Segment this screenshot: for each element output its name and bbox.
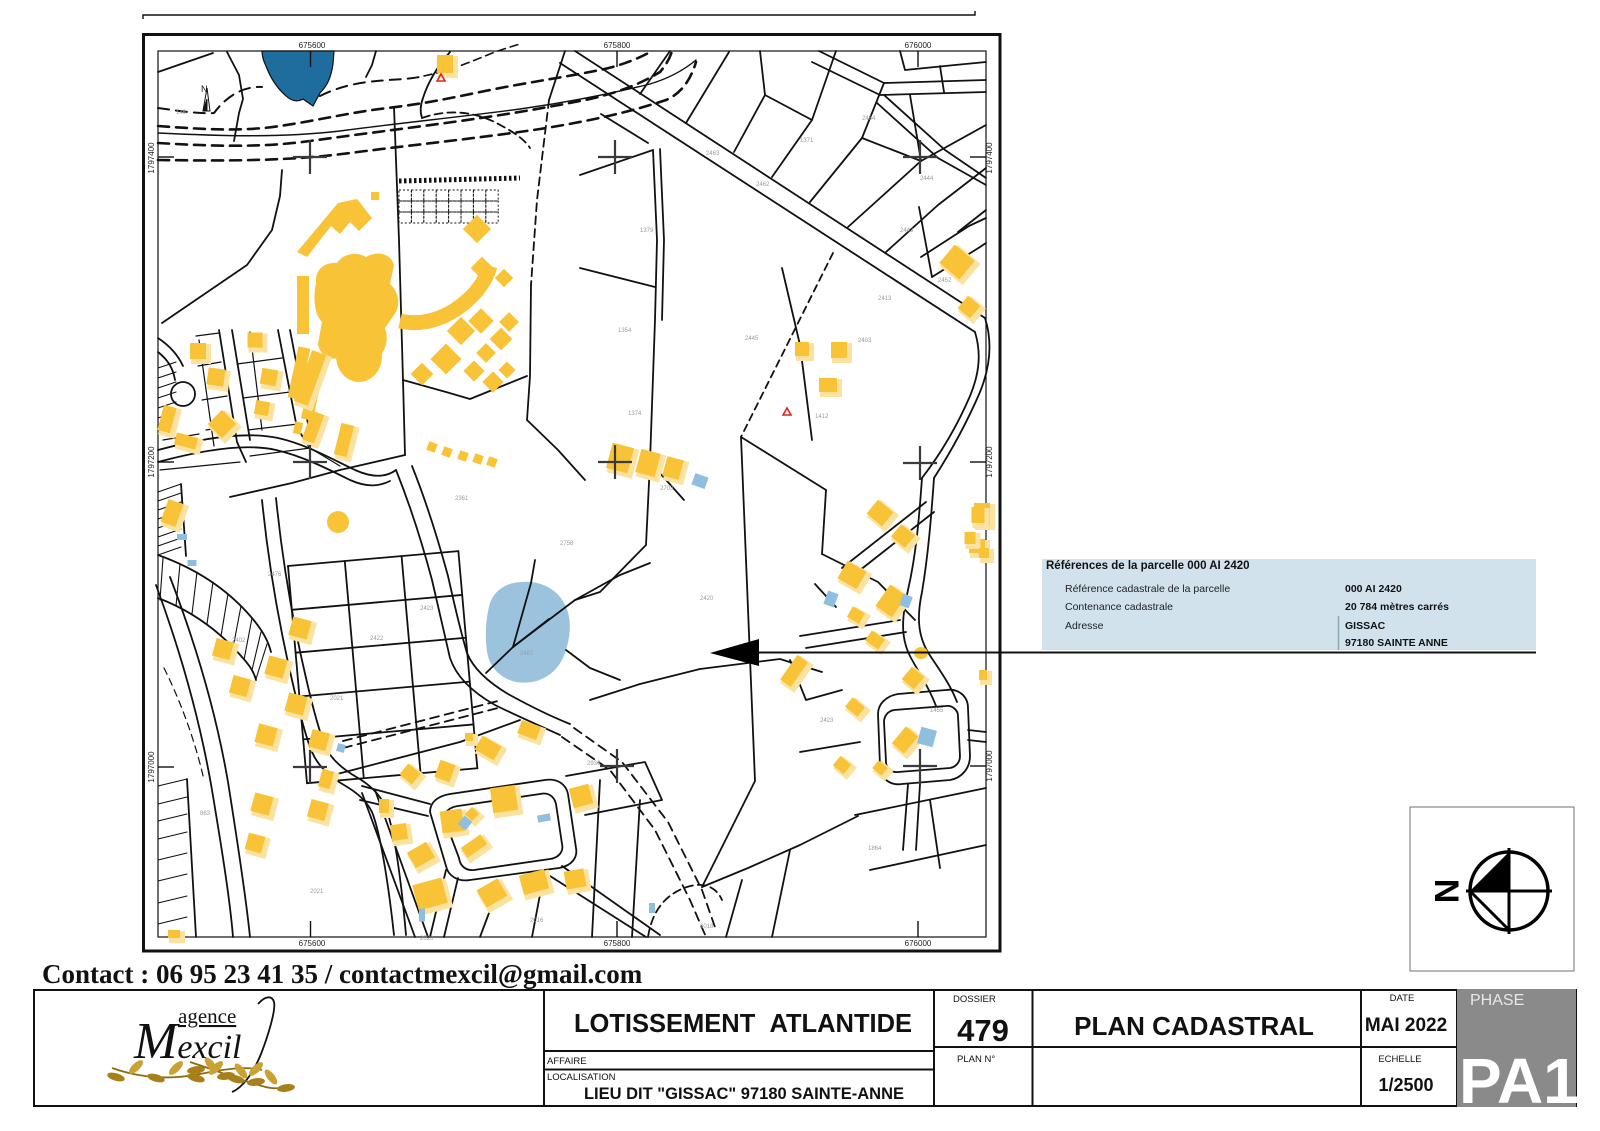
svg-text:LOTISSEMENT ATLANTIDE: LOTISSEMENT ATLANTIDE [574,1010,912,1038]
svg-text:20 784 mètres carrés: 20 784 mètres carrés [1345,601,1449,613]
svg-text:2463: 2463 [706,151,720,157]
svg-text:2413: 2413 [878,296,892,302]
svg-text:97180 SAINTE ANNE: 97180 SAINTE ANNE [1345,637,1448,649]
svg-text:2422: 2422 [370,636,384,642]
svg-text:2758: 2758 [560,541,574,547]
svg-text:Références de la parcelle 000: Références de la parcelle 000 AI 2420 [1046,560,1250,572]
svg-text:2487: 2487 [520,651,534,657]
svg-text:ECHELLE: ECHELLE [1378,1054,1421,1065]
svg-text:863: 863 [200,811,211,817]
svg-text:1797200: 1797200 [985,446,994,478]
svg-text:2021: 2021 [310,889,324,895]
svg-text:2021: 2021 [330,696,344,702]
svg-text:2018: 2018 [700,924,714,930]
svg-text:2420: 2420 [700,596,714,602]
svg-text:479: 479 [957,1013,1009,1048]
svg-text:146: 146 [176,110,187,116]
svg-text:2476: 2476 [268,572,282,578]
svg-text:1374: 1374 [628,411,642,417]
svg-text:2423: 2423 [420,606,434,612]
svg-text:2936: 2936 [587,761,601,767]
svg-text:1797400: 1797400 [147,142,156,174]
svg-text:LIEU DIT "GISSAC" 97180 SAINTE: LIEU DIT "GISSAC" 97180 SAINTE-ANNE [584,1085,904,1103]
svg-text:DOSSIER: DOSSIER [953,994,996,1005]
svg-text:000 AI 2420: 000 AI 2420 [1345,583,1402,595]
svg-text:1/2500: 1/2500 [1378,1075,1433,1095]
svg-text:LOCALISATION: LOCALISATION [547,1072,616,1083]
svg-text:2462: 2462 [756,182,770,188]
svg-text:1379: 1379 [640,228,654,234]
svg-text:1797000: 1797000 [985,750,994,782]
svg-text:1455: 1455 [930,708,944,714]
svg-text:2445: 2445 [745,336,759,342]
svg-text:2016: 2016 [530,918,544,924]
svg-text:2402: 2402 [232,638,246,644]
svg-text:2020: 2020 [420,936,434,942]
svg-text:1412: 1412 [815,414,829,420]
svg-text:675800: 675800 [604,41,631,50]
svg-text:MAI 2022: MAI 2022 [1365,1015,1447,1036]
svg-text:Adresse: Adresse [1065,620,1104,632]
svg-text:675600: 675600 [299,41,326,50]
svg-text:PLAN N°: PLAN N° [957,1054,995,1065]
svg-text:675600: 675600 [299,939,326,948]
svg-text:1354: 1354 [618,328,632,334]
svg-text:2703: 2703 [660,486,674,492]
svg-text:1797200: 1797200 [147,446,156,478]
svg-text:2403: 2403 [858,338,872,344]
svg-text:Référence cadastrale de la par: Référence cadastrale de la parcelle [1065,583,1230,595]
svg-text:2443: 2443 [900,228,914,234]
svg-text:2423: 2423 [820,718,834,724]
svg-text:2464: 2464 [862,116,876,122]
svg-text:2452: 2452 [938,278,952,284]
svg-text:PHASE: PHASE [1470,992,1524,1009]
svg-text:2361: 2361 [455,496,469,502]
svg-text:DATE: DATE [1390,993,1415,1004]
svg-text:PA1: PA1 [1459,1045,1579,1117]
svg-text:N: N [201,84,208,94]
svg-text:GISSAC: GISSAC [1345,620,1386,632]
svg-text:675800: 675800 [604,939,631,948]
svg-text:Contact : 06 95 23 41 35 / con: Contact : 06 95 23 41 35 / contactmexcil… [42,959,643,989]
svg-text:1797000: 1797000 [147,751,156,783]
svg-text:N: N [1427,879,1465,904]
svg-text:2444: 2444 [920,176,934,182]
svg-text:PLAN CADASTRAL: PLAN CADASTRAL [1074,1011,1314,1041]
svg-text:1371: 1371 [800,138,814,144]
svg-text:676000: 676000 [905,41,932,50]
svg-text:AFFAIRE: AFFAIRE [547,1056,587,1067]
svg-text:agence: agence [178,1004,236,1028]
svg-text:Contenance cadastrale: Contenance cadastrale [1065,601,1173,613]
svg-text:1864: 1864 [868,846,882,852]
svg-text:676000: 676000 [905,939,932,948]
